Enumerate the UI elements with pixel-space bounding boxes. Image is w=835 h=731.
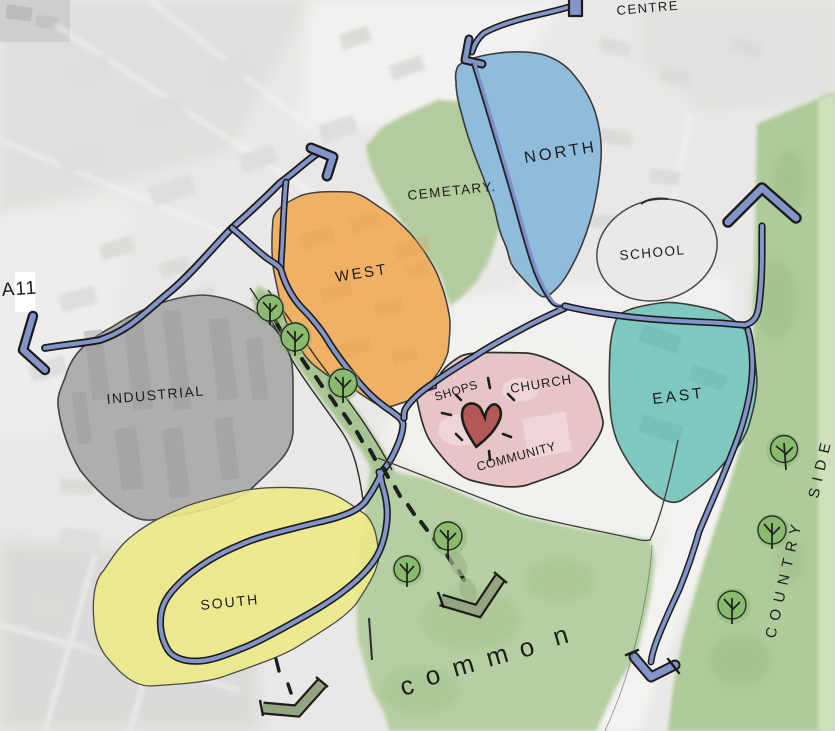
svg-text:A11: A11 bbox=[1, 278, 38, 301]
